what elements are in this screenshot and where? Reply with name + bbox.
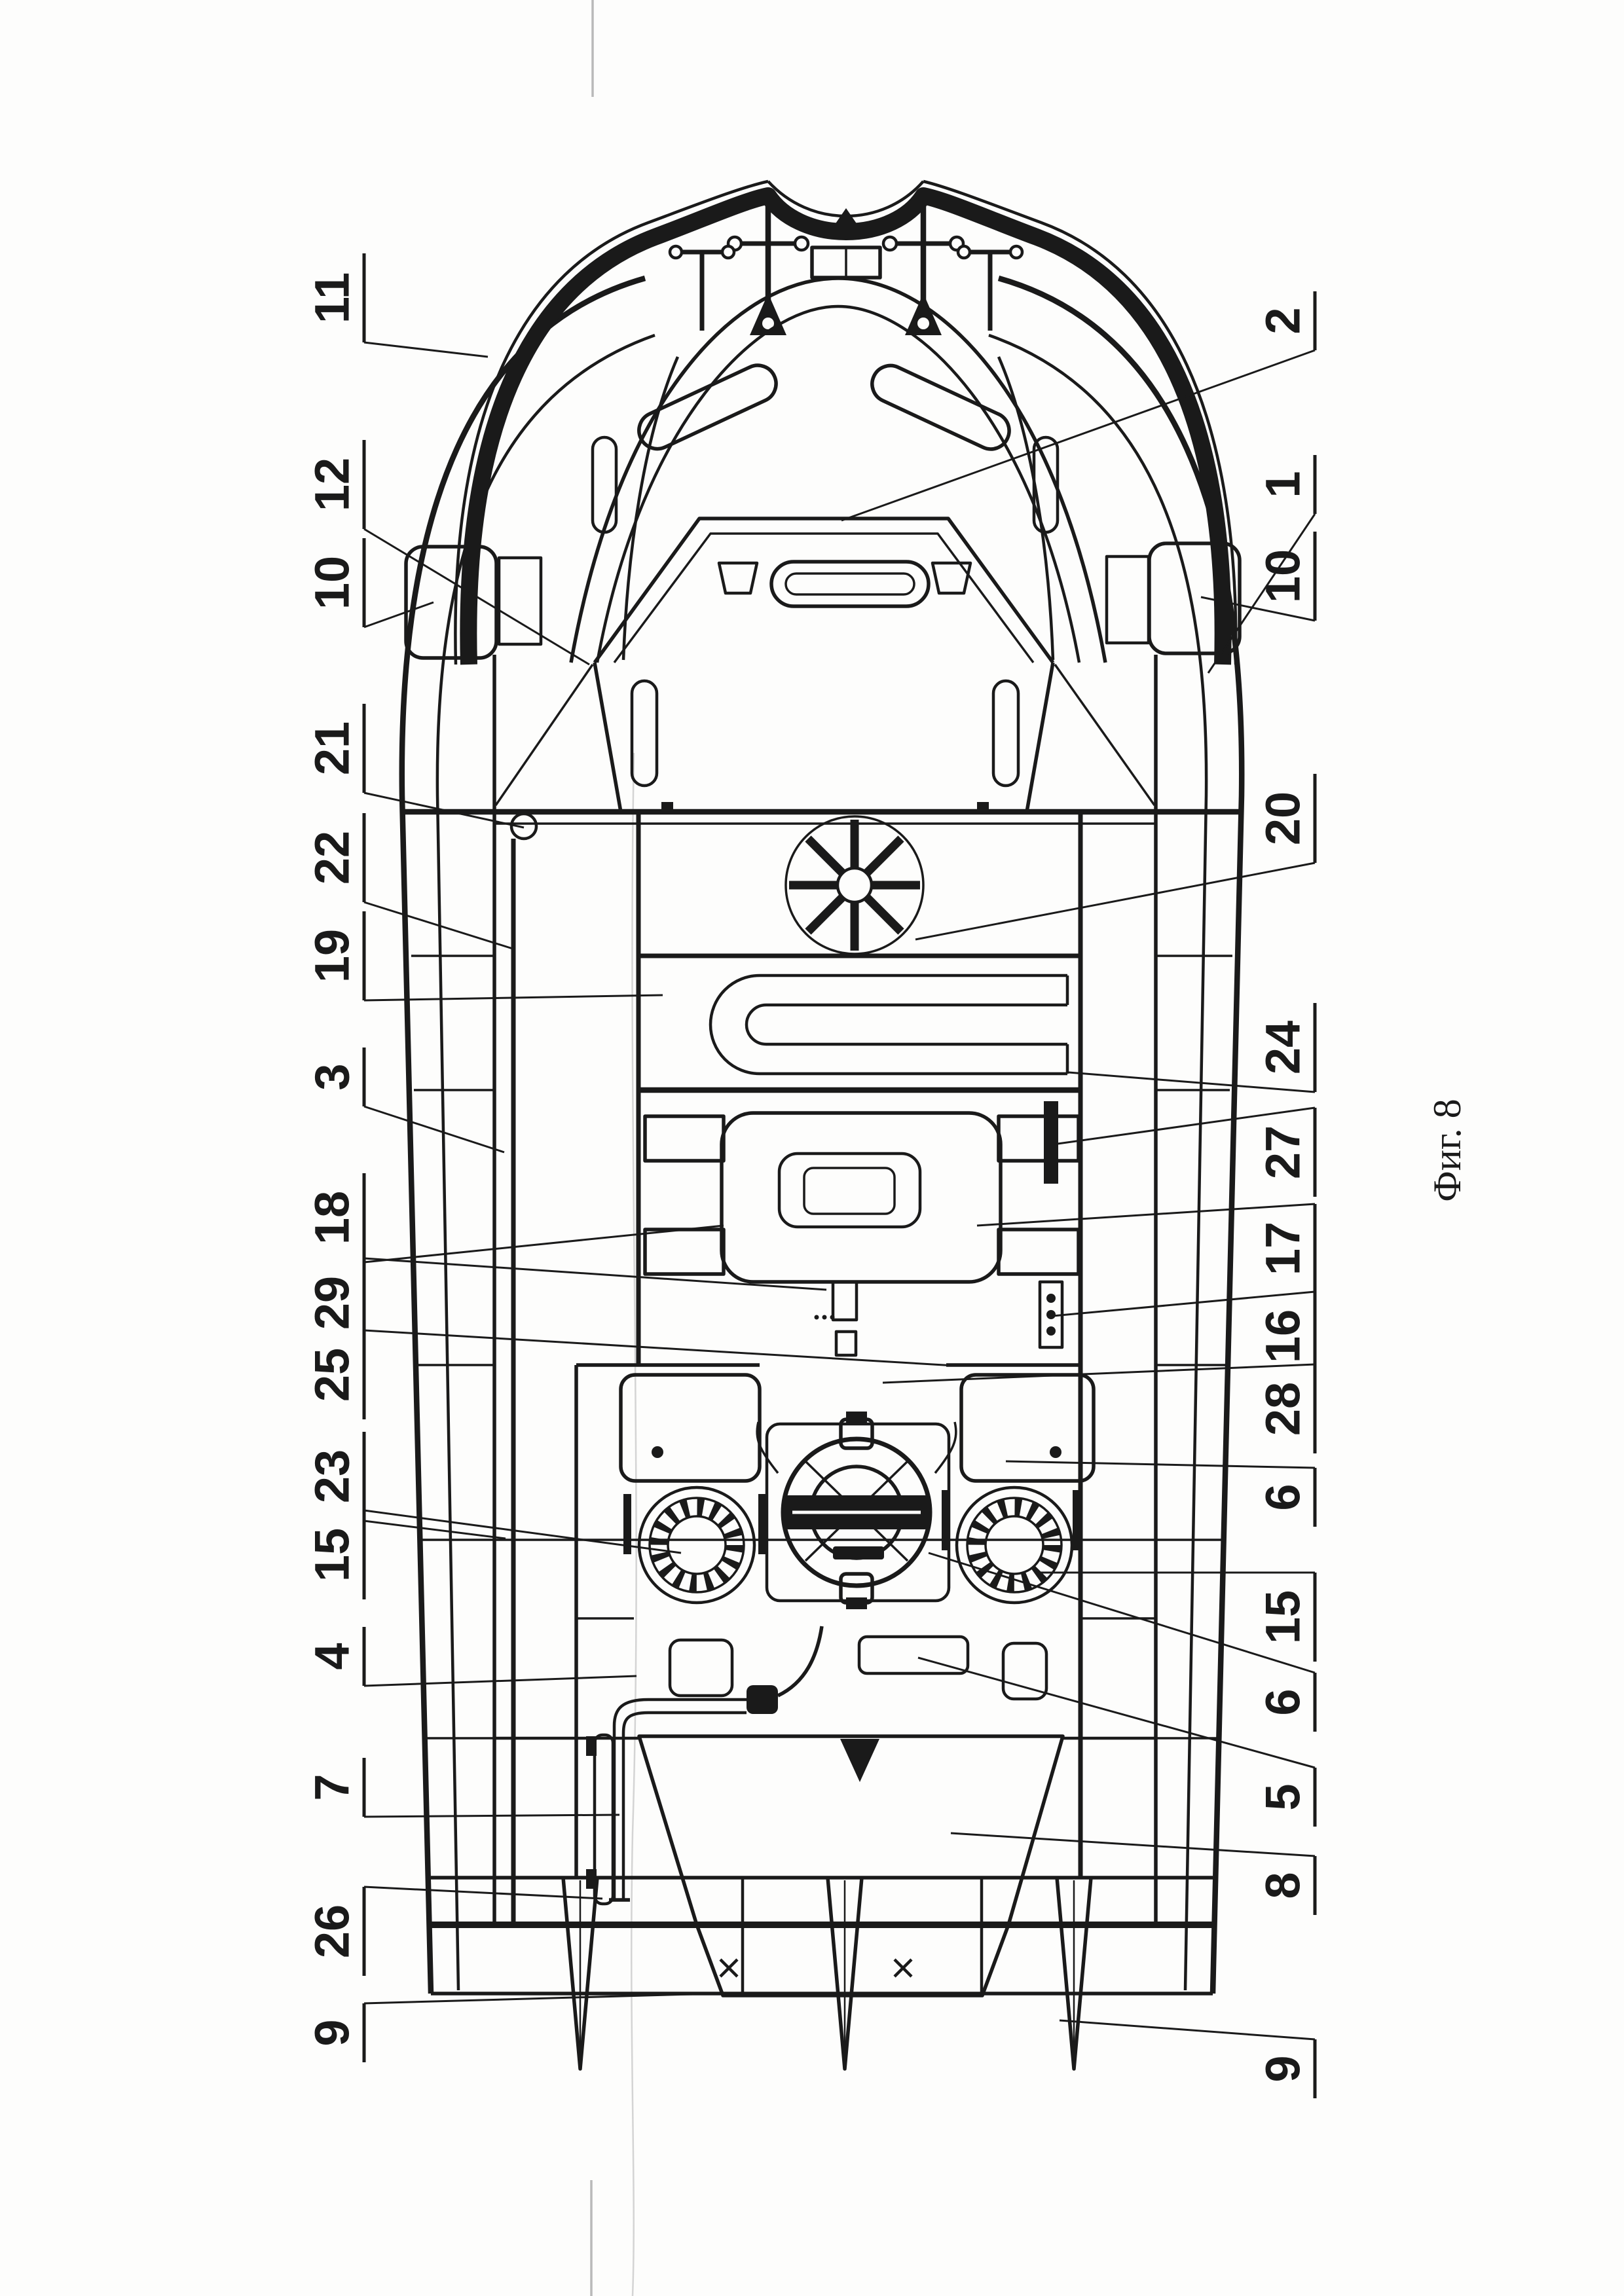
label-number-23: 23 <box>304 1449 359 1503</box>
windshield-vent-left <box>633 359 783 455</box>
callout-21-left: 21 <box>304 704 524 828</box>
leader-line-15 <box>364 1510 681 1553</box>
label-number-5: 5 <box>1255 1783 1310 1810</box>
label-number-2: 2 <box>1255 307 1310 334</box>
callout-23-left: 23 <box>304 1432 506 1539</box>
label-number-16: 16 <box>1255 1309 1310 1363</box>
patent-sheet: 1112102122193182925231547269211020242717… <box>0 0 1624 2296</box>
skeg-left <box>563 1878 597 2069</box>
leader-line-3 <box>364 1106 504 1152</box>
callout-4-left: 4 <box>304 1627 637 1686</box>
label-number-10: 10 <box>304 556 359 610</box>
exhaust-bar <box>1044 1101 1058 1184</box>
life-ring <box>757 1412 956 1609</box>
label-number-22: 22 <box>304 831 359 884</box>
label-number-6: 6 <box>1255 1688 1310 1715</box>
callout-7-left: 7 <box>304 1758 619 1817</box>
leader-line-11 <box>364 342 488 357</box>
label-number-4: 4 <box>304 1643 359 1669</box>
callout-16-right: 16 <box>1053 1292 1315 1381</box>
label-number-15: 15 <box>1255 1590 1310 1644</box>
stowage-boxes <box>670 1637 1046 1699</box>
deck-hatch-left <box>621 1375 760 1481</box>
skeg-right <box>1057 1878 1091 2069</box>
figure-caption: Фиг. 8 <box>1426 1099 1469 1201</box>
callout-29-left: 29 <box>304 1258 826 1347</box>
leader-line-6 <box>1006 1461 1315 1468</box>
label-number-18: 18 <box>304 1191 359 1245</box>
leader-line-26 <box>364 1887 602 1899</box>
lift-fan-right <box>957 1487 1072 1603</box>
label-number-21: 21 <box>304 721 359 775</box>
leader-line-4 <box>364 1676 637 1686</box>
skegs <box>563 1878 1091 2069</box>
engine-cooling-fan <box>786 816 923 954</box>
leader-line-18 <box>364 1226 724 1262</box>
console <box>496 437 1154 814</box>
leader-line-8 <box>951 1833 1315 1856</box>
leader-line-20 <box>915 863 1315 939</box>
console-vent <box>771 562 929 606</box>
callout-8-right: 8 <box>951 1833 1315 1915</box>
patent-figure: 1112102122193182925231547269211020242717… <box>0 0 1624 2296</box>
leader-line-23 <box>364 1521 506 1539</box>
label-number-25: 25 <box>304 1348 359 1402</box>
callout-3-left: 3 <box>304 1048 504 1152</box>
leader-line-9 <box>364 1994 693 2003</box>
label-number-10: 10 <box>1255 549 1310 603</box>
label-number-27: 27 <box>1255 1125 1310 1179</box>
label-number-29: 29 <box>304 1276 359 1330</box>
callout-9-right: 9 <box>1060 2020 1315 2098</box>
lift-fan-left <box>639 1487 754 1603</box>
boat-hook-rod <box>511 814 536 1925</box>
label-number-1: 1 <box>1255 471 1310 498</box>
grab-handle-left <box>593 437 616 532</box>
fuel-pipe <box>586 1626 822 1904</box>
label-number-12: 12 <box>304 458 359 511</box>
label-number-3: 3 <box>304 1063 359 1090</box>
leader-line-25 <box>364 1330 955 1366</box>
cup-holder-left <box>719 563 757 593</box>
callout-24-right: 24 <box>1069 1003 1315 1092</box>
leader-line-10 <box>364 602 434 627</box>
drain-cross-right <box>895 1959 912 1977</box>
label-number-7: 7 <box>304 1774 359 1800</box>
engine <box>645 1113 1079 1355</box>
leader-line-9 <box>1060 2020 1315 2039</box>
callout-17-right: 17 <box>977 1204 1315 1293</box>
callout-26-left: 26 <box>304 1887 602 1976</box>
label-number-9: 9 <box>1255 2055 1310 2082</box>
callout-20-right: 20 <box>915 774 1315 939</box>
label-number-6: 6 <box>1255 1484 1310 1510</box>
label-number-8: 8 <box>1255 1872 1310 1899</box>
callout-11-left: 11 <box>304 253 488 357</box>
stern-deck <box>639 1736 1063 1995</box>
callout-27-right: 27 <box>1053 1108 1315 1197</box>
callout-5-right: 5 <box>918 1658 1315 1827</box>
label-number-26: 26 <box>304 1904 359 1958</box>
label-number-9: 9 <box>304 2019 359 2046</box>
callout-15-right: 15 <box>1036 1573 1315 1662</box>
leader-line-29 <box>364 1258 826 1290</box>
callout-9-left: 9 <box>304 1994 693 2062</box>
leader-line-7 <box>364 1815 619 1817</box>
deck-hatch-right <box>961 1375 1094 1481</box>
skeg-center <box>828 1878 862 2069</box>
callout-22-left: 22 <box>304 813 515 949</box>
label-number-19: 19 <box>304 929 359 983</box>
leader-line-28 <box>883 1364 1315 1383</box>
engine-shaft <box>833 1282 857 1320</box>
label-number-17: 17 <box>1255 1222 1310 1275</box>
label-number-20: 20 <box>1255 792 1310 845</box>
drain-cross-left <box>720 1959 737 1977</box>
cup-holder-right <box>932 563 970 593</box>
label-number-28: 28 <box>1255 1382 1310 1436</box>
label-number-15: 15 <box>304 1528 359 1582</box>
label-number-24: 24 <box>1255 1021 1310 1074</box>
label-number-11: 11 <box>304 272 359 323</box>
